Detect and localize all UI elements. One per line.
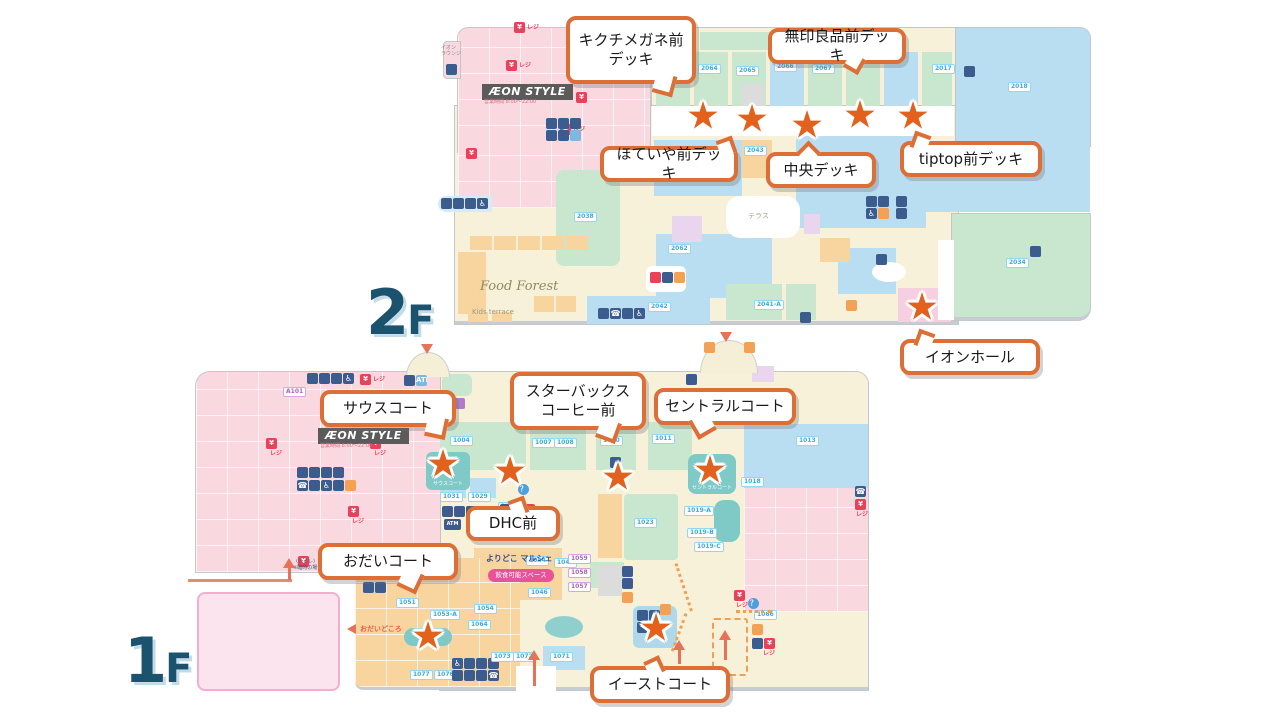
1f-parking-area	[197, 592, 340, 691]
unit-number: 2067	[812, 64, 835, 74]
callout-starbucks: スターバックス コーヒー前	[510, 372, 646, 430]
floor-suffix: F	[165, 646, 190, 692]
entrance-arrow-stem	[724, 638, 727, 660]
2f-hall-corridor	[938, 240, 954, 320]
escalator-icon	[297, 467, 308, 478]
callout-odai-court: おだいコート	[318, 543, 458, 580]
elevator-icon	[464, 670, 475, 681]
stairs-icon	[454, 506, 465, 517]
floor-label-1f: 1F	[124, 630, 190, 692]
inshoku-badge: 飲食可能スペース	[488, 569, 554, 582]
yoridoko-label: よりどこ マルシェ	[486, 554, 552, 563]
entrance-arrow	[421, 344, 433, 354]
register-icon: ¥	[360, 374, 371, 385]
elevator-icon	[453, 198, 464, 209]
nursing-room-icon	[622, 578, 633, 589]
walk-route-dotted	[736, 610, 772, 613]
stairs-icon	[309, 467, 320, 478]
callout-text: セントラルコート	[665, 397, 785, 416]
escalator-icon	[866, 196, 877, 207]
door-icon	[744, 342, 755, 353]
service-icon	[309, 480, 320, 491]
1f-entrance-dome-southwest	[406, 352, 450, 377]
cart-icon	[800, 312, 811, 323]
register-label: レジ	[270, 451, 282, 457]
wheelchair-icon: ♿	[452, 658, 463, 669]
star-marker-tiptop-deck: ★	[896, 96, 930, 134]
star-marker-chuo-deck: ★	[790, 105, 824, 143]
callout-text: 中央デッキ	[783, 161, 858, 180]
phone-icon: ☎	[297, 480, 308, 491]
lounge-icon	[446, 64, 457, 75]
callout-central-court: セントラルコート	[654, 388, 796, 425]
restroom-icon	[442, 506, 453, 517]
nursing-room-icon	[331, 373, 342, 384]
odaidokoro-arrow	[347, 624, 356, 634]
register-icon: ¥	[514, 22, 525, 33]
stairs-icon	[896, 208, 907, 219]
unit-number: 1031	[440, 492, 463, 502]
callout-aeon-hall: イオンホール	[900, 339, 1040, 375]
unit-number: 2062	[668, 244, 691, 254]
callout-chuo-deck: 中央デッキ	[766, 152, 876, 188]
1f-south-entrance-notch	[516, 666, 556, 692]
entrance-arrow-stem	[533, 658, 536, 686]
unit-number: 1011	[652, 434, 675, 444]
callout-hoteiya-deck: ほていや前デッキ	[600, 146, 738, 182]
1f-shop-block	[598, 494, 622, 558]
register-icon: ¥	[764, 638, 775, 649]
restroom-icon	[622, 566, 633, 577]
unit-number: 2041-A	[754, 300, 784, 310]
atm-icon: ATM	[416, 375, 427, 386]
1f-right-pink-block	[744, 488, 868, 612]
unit-number: 1019-A	[684, 506, 714, 516]
door-icon	[846, 300, 857, 311]
register-icon: ¥	[266, 438, 277, 449]
register-label: レジ	[519, 63, 531, 69]
callout-text: イーストコート	[608, 675, 712, 694]
door-icon	[878, 208, 889, 219]
aeon-style-logo: ÆON STYLE	[318, 428, 409, 444]
2f-shop-block	[518, 236, 540, 250]
unit-number: 1051	[396, 598, 419, 608]
unit-number: 1007	[532, 438, 555, 448]
floor-number: 1	[124, 624, 165, 697]
2f-shop-block	[542, 236, 564, 250]
door-icon	[674, 272, 685, 283]
register-icon: ¥	[734, 590, 745, 601]
nursing-room-icon	[464, 658, 475, 669]
door-icon	[622, 592, 633, 603]
floor-label-2f: 2F	[366, 282, 432, 344]
ion-lounge-label: イオン ラウンジ	[441, 46, 461, 58]
star-marker-aeon-hall: ★	[905, 287, 939, 325]
aeon-hours: 営業時間 8:00〜22:00	[484, 100, 536, 106]
register-label: レジ	[856, 512, 868, 518]
unit-number: 1018	[741, 477, 764, 487]
restroom-icon	[441, 198, 452, 209]
star-marker-east-court: ★	[639, 608, 673, 646]
cart-icon	[558, 118, 569, 129]
wheelchair-icon: ♿	[866, 208, 877, 219]
register-label: レジ	[527, 25, 539, 31]
kids-terrace-label: Kids terrace	[472, 308, 514, 316]
register-label: レジ	[352, 519, 364, 525]
escalator-icon	[404, 375, 415, 386]
star-marker-dhc: ★	[493, 451, 527, 489]
phone-icon: ☎	[855, 486, 866, 497]
elevator-icon	[598, 308, 609, 319]
parking-route-stem	[288, 568, 291, 580]
fountain-area	[714, 500, 740, 542]
wheelchair-icon: ♿	[634, 308, 645, 319]
stairs-icon	[752, 638, 763, 649]
unit-number: 1019-B	[687, 528, 717, 538]
restroom-icon	[622, 308, 633, 319]
restroom-icon	[662, 272, 673, 283]
wheelchair-icon: ♿	[343, 373, 354, 384]
register-icon: ¥	[576, 92, 587, 103]
register-icon: ¥	[855, 499, 866, 510]
stairs-icon	[558, 130, 569, 141]
callout-east-court: イーストコート	[590, 666, 730, 703]
callout-tail	[424, 415, 449, 440]
callout-text: スターバックス コーヒー前	[526, 382, 630, 420]
2f-shop-block	[534, 296, 554, 312]
nursing-room-icon	[896, 196, 907, 207]
unit-number: 1073	[491, 652, 514, 662]
unit-number: 1059	[568, 554, 591, 564]
service-icon	[546, 118, 557, 129]
unit-number: 1023	[634, 518, 657, 528]
unit-number: 1057	[568, 582, 591, 592]
unit-number: 1064	[468, 620, 491, 630]
unit-number: 2065	[736, 66, 759, 76]
unit-number: 1019-C	[694, 542, 724, 552]
2f-shop-block	[556, 296, 576, 312]
callout-text: ほていや前デッキ	[610, 145, 728, 183]
2f-shop-block	[566, 236, 588, 250]
unit-number: 1046	[528, 588, 551, 598]
nursing-room-icon	[465, 198, 476, 209]
callout-text: イオンホール	[925, 348, 1015, 367]
aeon-style-logo: ÆON STYLE	[482, 84, 573, 100]
wheelchair-icon: ♿	[321, 480, 332, 491]
register-icon: ¥	[466, 148, 477, 159]
parking-route-line	[188, 579, 292, 582]
door-icon	[345, 480, 356, 491]
entrance-arrow	[283, 558, 295, 568]
unit-number: 2064	[698, 64, 721, 74]
unit-number: 1013	[796, 436, 819, 446]
restroom-icon	[570, 118, 581, 129]
1f-shop-block	[648, 422, 692, 470]
information-icon: ？	[748, 598, 759, 609]
2f-shop-block	[820, 238, 850, 262]
callout-muji-deck: 無印良品前デッキ	[768, 28, 906, 64]
callout-text: 無印良品前デッキ	[778, 27, 896, 65]
cafe-icon	[375, 582, 386, 593]
first-aid-icon	[650, 272, 661, 283]
restroom-icon	[333, 467, 344, 478]
callout-text: おだいコート	[343, 552, 433, 571]
door-icon	[752, 624, 763, 635]
escalator-icon	[546, 130, 557, 141]
1f-water-feature	[545, 616, 583, 638]
elevator-icon	[964, 66, 975, 77]
pet-icon	[333, 480, 344, 491]
entrance-arrow	[720, 332, 732, 342]
unit-number: 2043	[744, 146, 767, 156]
unit-number: 2017	[932, 64, 955, 74]
callout-text: キクチメガネ前 デッキ	[578, 31, 683, 69]
restroom-icon	[1030, 246, 1041, 257]
callout-south-court: サウスコート	[320, 390, 456, 427]
wheelchair-icon: ♿	[477, 198, 488, 209]
callout-dhc: DHC前	[466, 506, 560, 541]
unit-number: 2042	[648, 302, 671, 312]
restroom-icon	[476, 658, 487, 669]
floor-suffix: F	[407, 298, 432, 344]
star-marker-hoteiya-deck: ★	[735, 99, 769, 137]
unit-number: 1029	[468, 492, 491, 502]
unit-number: 1058	[568, 568, 591, 578]
register-icon: ¥	[506, 60, 517, 71]
register-label: レジ	[763, 651, 775, 657]
2f-shop-block	[494, 236, 516, 250]
register-label: レジ	[374, 451, 386, 457]
star-marker-central-court: ★	[693, 450, 727, 488]
food-forest-label: Food Forest	[480, 280, 558, 295]
star-marker-odai-court: ★	[411, 616, 445, 654]
star-marker-south-court: ★	[426, 444, 460, 482]
cart-icon	[321, 467, 332, 478]
callout-tiptop-deck: tiptop前デッキ	[900, 141, 1042, 177]
unit-number: 1008	[554, 438, 577, 448]
unit-number: 1054	[474, 604, 497, 614]
stairs-icon	[319, 373, 330, 384]
escalator-icon	[876, 254, 887, 265]
restroom-icon	[878, 196, 889, 207]
unit-number: 1071	[550, 652, 573, 662]
phone-icon: ☎	[610, 308, 621, 319]
atm-icon: ATM	[444, 519, 461, 530]
1f-shop-block	[598, 566, 622, 596]
star-marker-kikuchi-deck: ★	[686, 96, 720, 134]
restroom-icon	[307, 373, 318, 384]
escalator-icon	[452, 670, 463, 681]
aeon-hours: 営業時間 8:00〜22:00	[320, 444, 372, 450]
unit-number: 1077	[410, 670, 433, 680]
2f-escalator-area	[872, 262, 906, 282]
callout-text: tiptop前デッキ	[919, 150, 1023, 169]
floor-number: 2	[366, 276, 407, 349]
info-icon	[570, 130, 581, 141]
odaidokoro-label: おだいどころ	[360, 625, 402, 633]
unit-number: 2018	[1008, 82, 1031, 92]
locker-icon	[476, 670, 487, 681]
callout-text: サウスコート	[343, 399, 433, 418]
register-icon: ¥	[348, 506, 359, 517]
unit-number: A101	[283, 387, 306, 397]
star-marker-muji-deck: ★	[843, 95, 877, 133]
mall-floor-map: イオン ラウンジ 2063 2064 2065 2066 2067 2017 2…	[0, 0, 1280, 720]
terrace-label: テラス	[748, 212, 769, 220]
door-icon	[704, 342, 715, 353]
2f-shop-block	[470, 236, 492, 250]
elevator-icon	[686, 374, 697, 385]
2f-shop-block	[672, 216, 702, 242]
phone-icon: ☎	[488, 670, 499, 681]
restaurant-icon	[363, 582, 374, 593]
unit-number: 2038	[574, 212, 597, 222]
callout-kikuchi-deck: キクチメガネ前 デッキ	[566, 16, 696, 84]
register-label: レジ	[736, 603, 748, 609]
entrance-arrow-stem	[678, 648, 681, 664]
unit-number: 2034	[1006, 258, 1029, 268]
register-label: レジ	[373, 377, 385, 383]
star-marker-starbucks: ★	[601, 457, 635, 495]
2f-shop-block	[804, 214, 820, 234]
